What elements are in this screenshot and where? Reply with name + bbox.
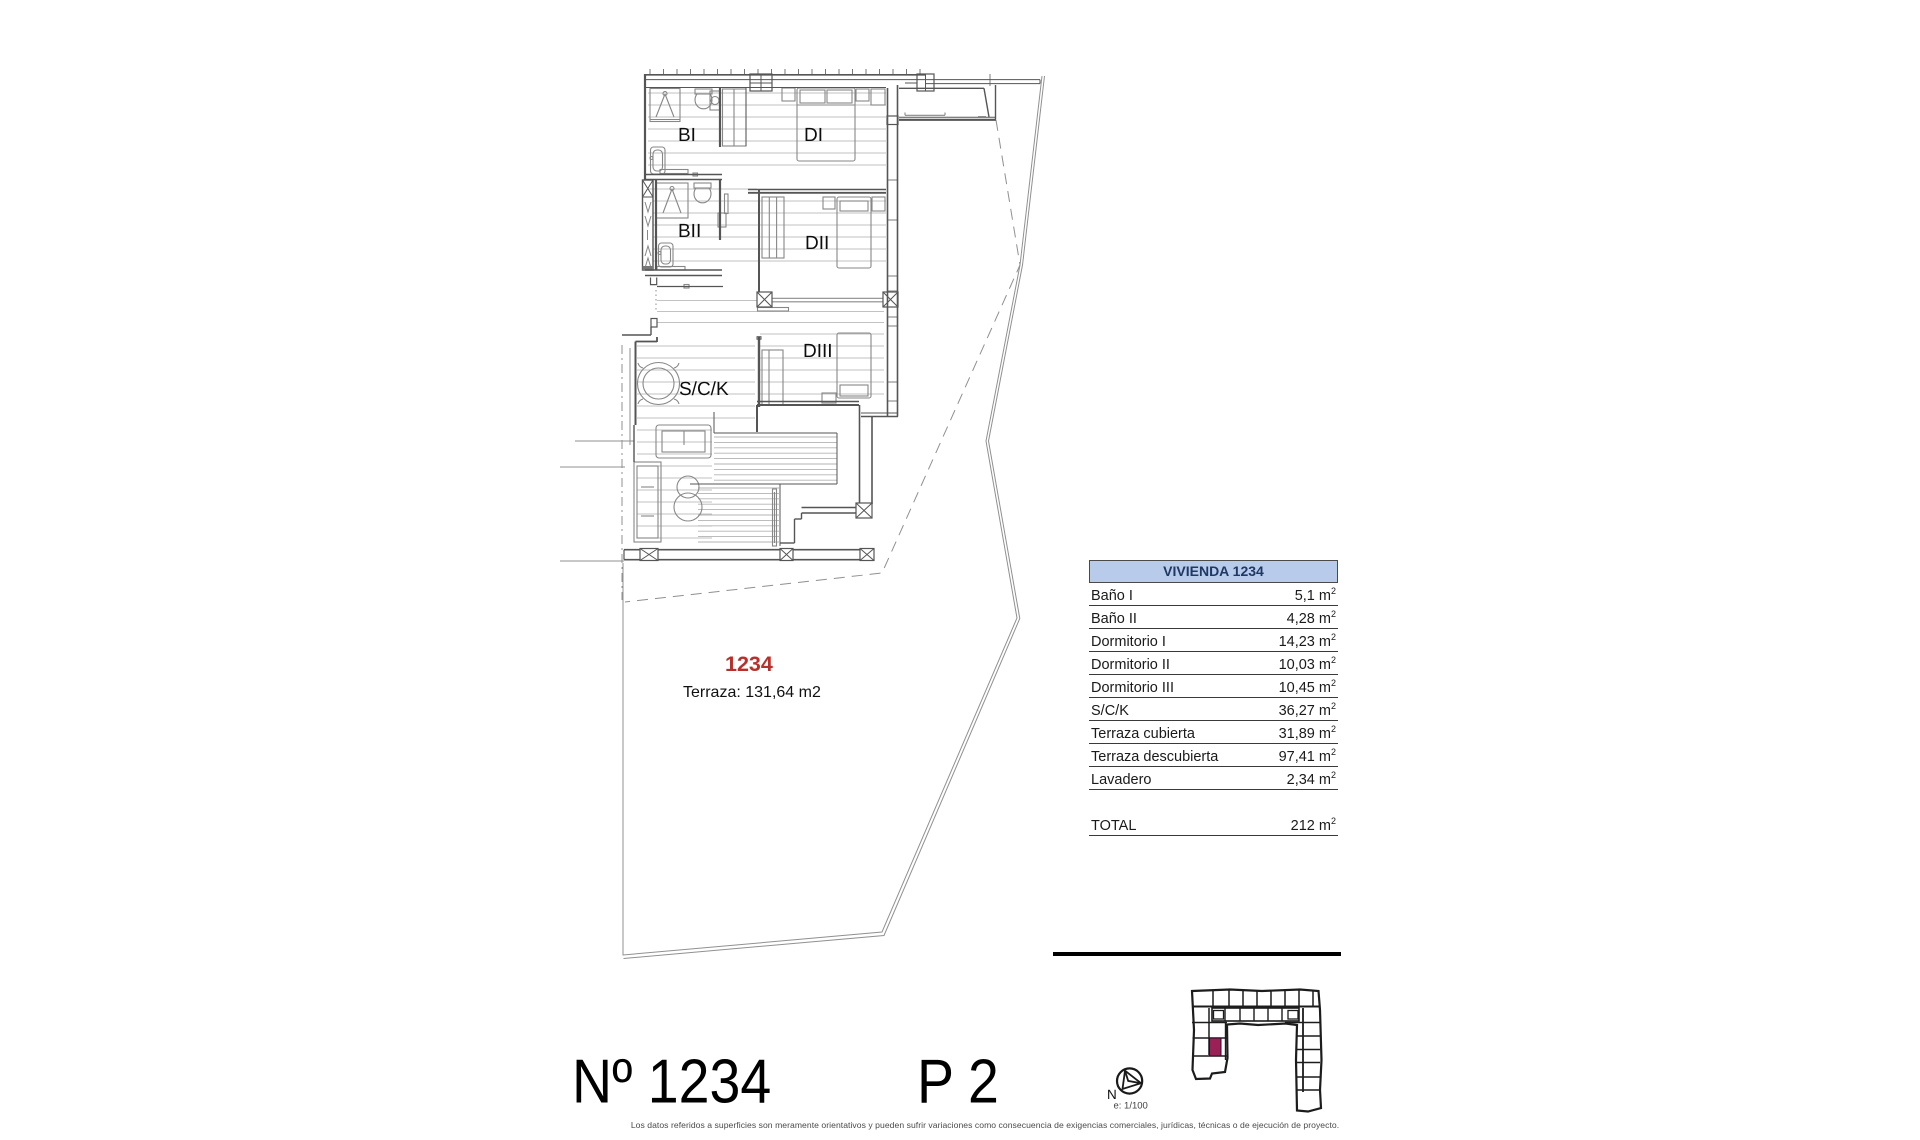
svg-text:DII: DII <box>805 233 829 254</box>
svg-text:DIII: DIII <box>803 341 833 362</box>
svg-text:S/C/K: S/C/K <box>679 379 729 400</box>
svg-text:DI: DI <box>804 125 823 146</box>
svg-text:BI: BI <box>678 125 696 146</box>
svg-text:e: 1/100: e: 1/100 <box>1114 1101 1148 1112</box>
svg-text:BII: BII <box>678 221 701 242</box>
